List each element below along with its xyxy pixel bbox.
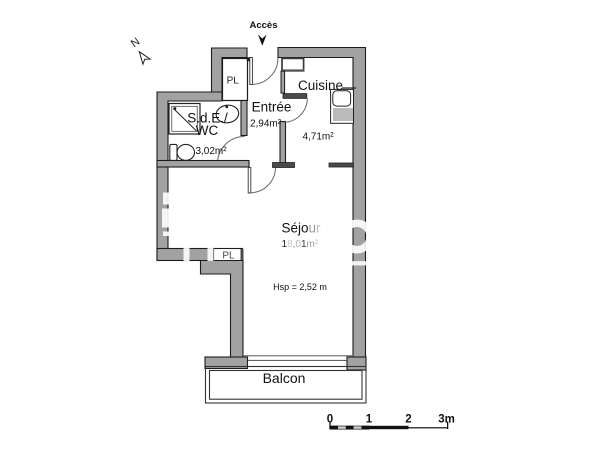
svg-text:WC: WC	[196, 123, 219, 138]
svg-text:PL: PL	[222, 251, 235, 262]
svg-text:Accès: Accès	[250, 20, 278, 31]
svg-text:Entrée: Entrée	[252, 100, 292, 115]
svg-text:Séjour: Séjour	[282, 221, 322, 236]
svg-text:2: 2	[405, 414, 411, 426]
svg-text:Hsp = 2,52 m: Hsp = 2,52 m	[273, 282, 327, 292]
svg-text:Balcon: Balcon	[263, 370, 306, 386]
svg-text:2,94m²: 2,94m²	[250, 119, 282, 130]
svg-text:18,01m²: 18,01m²	[282, 239, 319, 250]
svg-text:3m: 3m	[438, 414, 455, 426]
svg-text:N: N	[129, 36, 143, 50]
svg-text:4,71m²: 4,71m²	[302, 132, 334, 143]
svg-text:3,02m²: 3,02m²	[195, 146, 227, 157]
svg-text:Cuisine: Cuisine	[298, 78, 343, 93]
svg-text:1: 1	[366, 414, 373, 426]
svg-text:PL: PL	[227, 76, 240, 87]
